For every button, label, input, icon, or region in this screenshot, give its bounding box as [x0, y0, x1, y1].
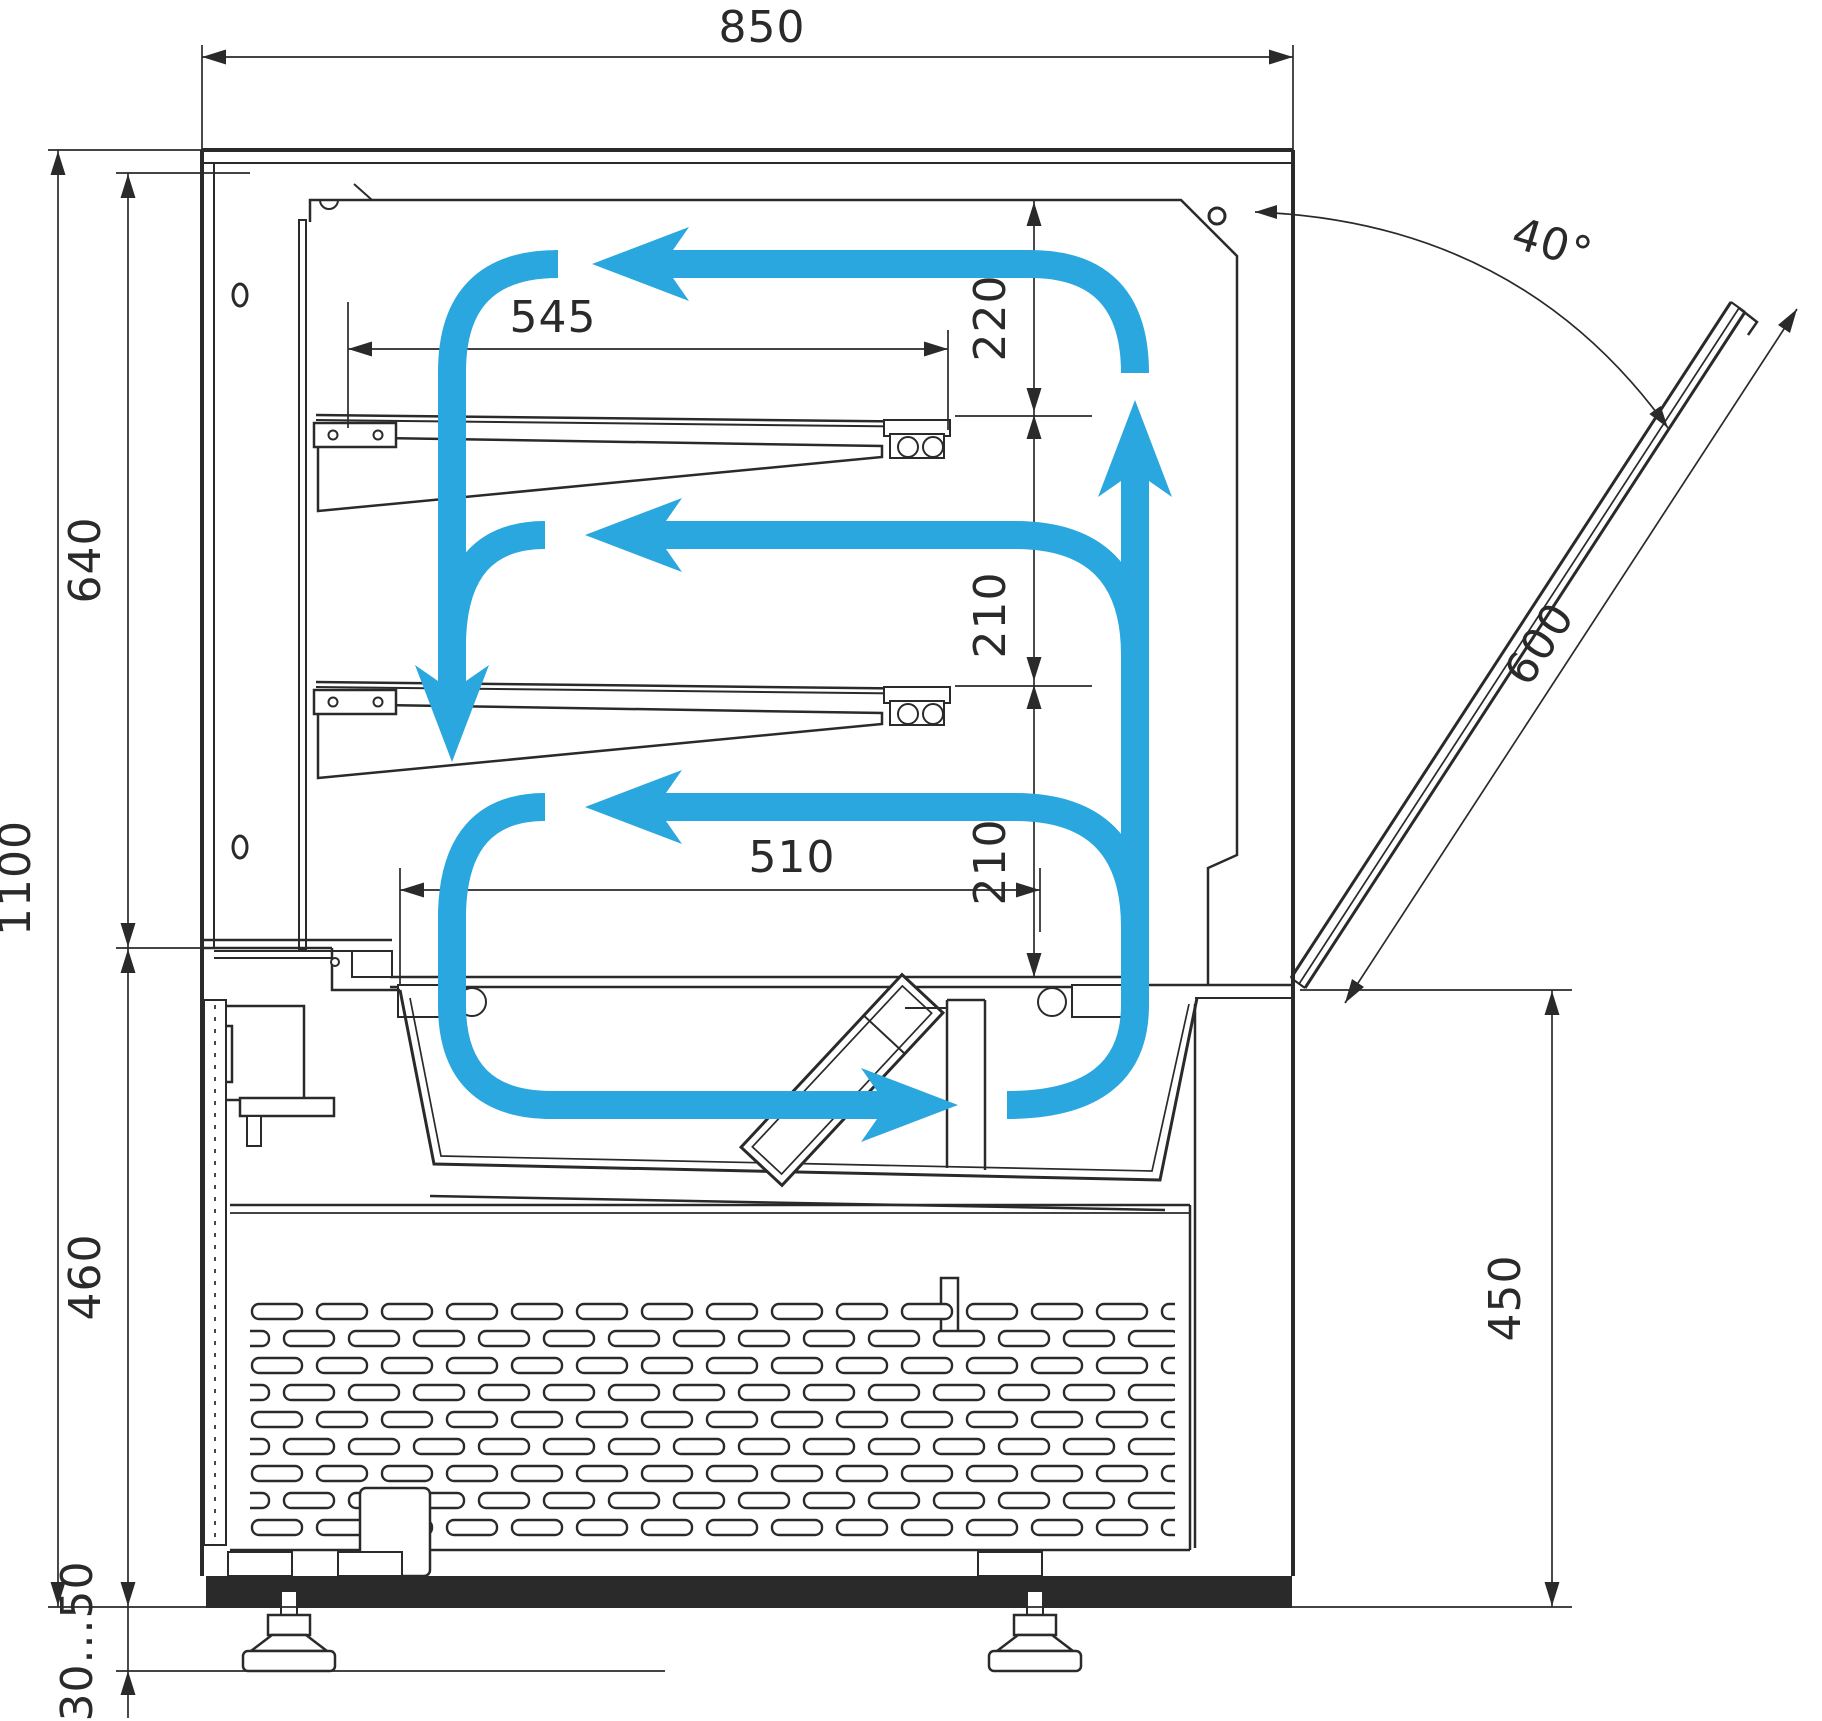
base-tab — [228, 1552, 292, 1576]
cabinet-structure — [202, 150, 1757, 1671]
dim-850-label: 850 — [719, 2, 806, 53]
mounting-bracket — [352, 951, 392, 977]
clamp-roller-icon — [898, 704, 918, 724]
valve-base — [240, 1098, 334, 1116]
clamp-roller-icon — [898, 437, 918, 457]
air-partition — [947, 1000, 985, 1170]
evaporator-unit — [741, 975, 943, 1186]
vent-hole-icon-lower — [233, 836, 247, 858]
dim-arc-40deg — [1255, 212, 1668, 428]
dim-510-label: 510 — [749, 832, 836, 883]
dim-545-label: 545 — [510, 292, 597, 343]
ceiling-latch-detail — [320, 200, 338, 209]
door-handle-icon — [1739, 308, 1757, 335]
dim-210-low-label: 210 — [965, 819, 1016, 906]
dim-30-50-label: 30...50 — [52, 1561, 103, 1721]
base-frame — [206, 1576, 1292, 1608]
display-case-drawing: 850 545 510 220 210 210 1100 640 460 30.… — [0, 0, 1822, 1721]
technical-drawing-page: 850 545 510 220 210 210 1100 640 460 30.… — [0, 0, 1822, 1721]
screw-hole-icon — [331, 958, 339, 966]
shelf-bracket-plate — [314, 690, 396, 714]
shelf-bracket-plate — [314, 423, 396, 447]
dim-1100-label: 1100 — [0, 820, 41, 936]
shelf-support-arm — [318, 704, 882, 778]
clamp-roller-icon — [923, 437, 943, 457]
screw-hole-icon — [329, 431, 338, 440]
shelf-lower — [314, 682, 950, 778]
deck-holder-right — [1072, 985, 1124, 1017]
airflow-low-crossflow — [666, 807, 1135, 927]
dim-640-label: 640 — [60, 517, 111, 604]
base-tab — [978, 1552, 1042, 1576]
well-basin-bottom-shell — [430, 1196, 1165, 1210]
deck-roller-icon — [1038, 988, 1066, 1016]
dim-line-600 — [1345, 309, 1797, 1003]
front-frame-hole-icon — [1209, 208, 1225, 224]
pipe-stub — [247, 1116, 261, 1146]
shelf-upper — [314, 415, 950, 511]
vent-hole-icon-upper — [233, 284, 247, 306]
dim-40deg-label: 40° — [1506, 208, 1598, 280]
dim-210-mid-label: 210 — [965, 572, 1016, 659]
screw-hole-icon — [374, 698, 383, 707]
dim-460-label: 460 — [60, 1234, 111, 1321]
clamp-roller-icon — [923, 704, 943, 724]
airflow-mid-crossflow — [666, 535, 1135, 655]
dim-450-label: 450 — [1480, 1255, 1531, 1342]
dim-220-label: 220 — [965, 275, 1016, 362]
side-glass-panel — [299, 220, 306, 950]
screw-hole-icon — [374, 431, 383, 440]
dim-600-label: 600 — [1495, 594, 1585, 695]
airflow-top-crossflow — [673, 264, 1135, 373]
shelf-support-arm — [318, 437, 882, 511]
bottom-deck — [390, 977, 1125, 1017]
screw-hole-icon — [329, 698, 338, 707]
ceiling-latch-detail-2 — [354, 184, 372, 200]
base-tab — [338, 1552, 402, 1576]
